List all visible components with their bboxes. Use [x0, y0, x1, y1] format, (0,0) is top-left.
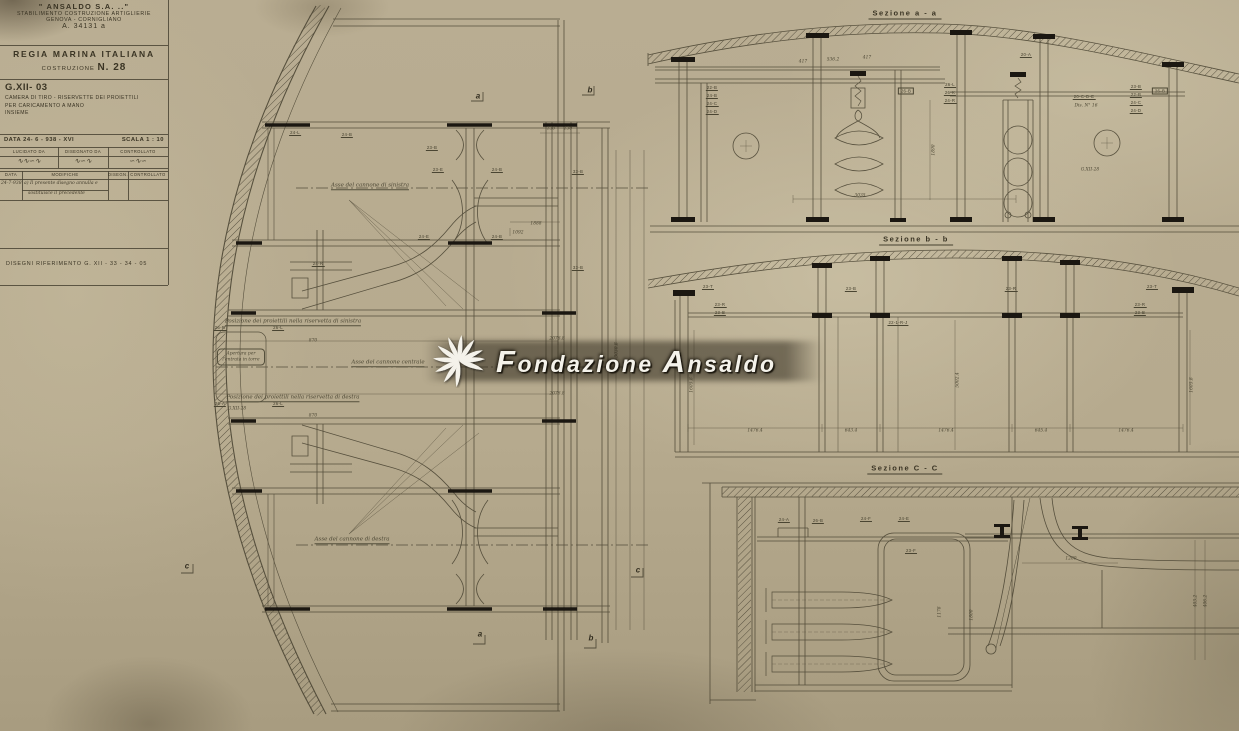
annotation-dimv: 403.2 — [1194, 595, 1199, 608]
annotation-plab: 24-A — [778, 517, 790, 523]
annotation-plab: 23-T — [702, 284, 714, 290]
annotation-plab: 24-C — [706, 101, 719, 107]
annotation-plab: 23-B — [426, 145, 438, 151]
annotation-pbox: 26-B — [1152, 88, 1168, 95]
annotation-plab: 24-L — [289, 130, 301, 136]
annotation-plab: 24-R — [312, 261, 325, 267]
annotation-plab: 26-A — [214, 401, 226, 407]
annotation-handbox: Apertura per l'entrata in torre — [217, 349, 265, 366]
annotation-dim: 130 — [547, 127, 555, 132]
annotation-plab: 23-B — [714, 310, 726, 316]
annotation-plab: 26-L — [272, 401, 284, 407]
annotation-marker: b — [589, 634, 594, 643]
annotation-plab: 23-B — [1130, 84, 1142, 90]
annotation-dim: 3035 — [854, 194, 865, 199]
annotation-hand-u: Posizione dei proiettili nella riservett… — [226, 394, 359, 402]
fondazione-ansaldo-pinwheel-icon — [432, 334, 486, 388]
annotation-sec-title: Sezione b - b — [879, 235, 953, 246]
annotation-dimv: 1178 — [938, 606, 943, 617]
annotation-plab: 26-L — [272, 325, 284, 331]
annotation-plab: 24-F — [860, 516, 872, 522]
annotation-plab: 23-R — [714, 302, 727, 308]
annotation-plab: 26-R — [214, 325, 227, 331]
annotation-dim: 1476.4 — [938, 429, 953, 434]
annotation-dim: 1200 — [1065, 557, 1076, 562]
annotation-plab: 24-E — [418, 234, 430, 240]
annotation-plab: 23-R — [1134, 302, 1147, 308]
annotation-dim: 1092 — [512, 231, 523, 236]
annotation-dim: 870 — [309, 339, 317, 344]
annotation-dimv: 1890 — [932, 144, 937, 155]
annotation-dim: 1888 — [530, 222, 541, 227]
annotation-plab: 26-L — [944, 82, 956, 88]
annotation-plab: 22-1-R-J — [887, 320, 908, 326]
annotation-hand-u: Asse del cannone di destra — [315, 536, 390, 544]
annotation-sec-title: Sezione a - a — [869, 9, 942, 20]
annotation-hand-u: Posizione dei proiettili nella riservett… — [225, 318, 361, 326]
annotation-sec-title: Sezione C - C — [867, 464, 942, 475]
annotation-plab: 23-B — [845, 286, 857, 292]
annotation-pbox: 26-B — [898, 88, 914, 95]
annotation-dim: 1476.4 — [747, 429, 762, 434]
annotation-dim: 870 — [309, 414, 317, 419]
annotation-dim: 417 — [799, 60, 807, 65]
annotation-dim: 536.2 — [827, 58, 840, 63]
annotation-plab: 24-R — [944, 98, 957, 104]
annotation-dim: 1476.4 — [1118, 429, 1133, 434]
watermark: Fondazione Ansaldo — [432, 336, 777, 386]
annotation-marker: b — [588, 86, 593, 95]
annotation-plab: 20-A — [1020, 52, 1032, 58]
annotation-plab: 23-E — [432, 167, 444, 173]
annotation-plab: 23-F — [905, 548, 917, 554]
annotation-dim: G.XII-28 — [228, 407, 246, 412]
annotation-plab: 26-B — [812, 518, 824, 524]
annotation-plab: 24-B — [706, 93, 718, 99]
annotation-plab: 20-C-D-E — [1073, 94, 1096, 100]
annotation-plab: 33-B — [572, 169, 584, 175]
watermark-text: Fondazione Ansaldo — [496, 346, 777, 377]
annotation-plab: 24-C — [1130, 100, 1143, 106]
annotation-plab: 24-B — [491, 167, 503, 173]
annotation-plab: 23-R — [1005, 286, 1018, 292]
annotation-plab: 24-E — [898, 516, 910, 522]
blueprint-sheet: " ANSALDO S.A. .." STABILIMENTO COSTRUZI… — [0, 0, 1239, 731]
annotation-plab: 24-B — [341, 132, 353, 138]
annotation-dim: Dis. N° 16 — [1075, 104, 1098, 109]
annotation-dim: G.XII-28 — [1081, 168, 1099, 173]
annotation-plab: 23-B — [1134, 310, 1146, 316]
annotation-marker: a — [476, 92, 480, 101]
annotation-dim: 643.4 — [845, 429, 858, 434]
annotation-marker: c — [185, 562, 189, 571]
annotation-plab: 24-D — [706, 109, 719, 115]
annotation-dimv: 1800 — [970, 609, 975, 620]
annotation-dim: 645.4 — [1035, 429, 1048, 434]
annotation-plab: 26-K — [944, 90, 956, 96]
annotation-plab: 22-B — [706, 85, 718, 91]
annotation-hand-u: Asse del cannone centrale — [351, 359, 424, 367]
annotation-dimv: 406.2 — [1204, 595, 1209, 608]
annotation-dimv: 5002.4 — [956, 372, 961, 387]
annotation-dim: 130 — [564, 127, 572, 132]
annotation-marker: a — [478, 630, 482, 639]
annotation-plab: 24-D — [1130, 108, 1143, 114]
annotation-plab: 23-T — [1146, 284, 1158, 290]
annotation-dimv: 1605.8 — [1190, 377, 1195, 392]
annotation-dim: 417 — [863, 56, 871, 61]
annotation-hand-u: Asse del cannone di sinistra — [331, 182, 409, 190]
annotation-marker: c — [636, 566, 640, 575]
annotation-plab: 22-B — [1130, 92, 1142, 98]
annotation-plab: 24-B — [491, 234, 503, 240]
annotation-plab: 33-B — [572, 265, 584, 271]
annotation-dim: 2076.8 — [549, 392, 564, 397]
